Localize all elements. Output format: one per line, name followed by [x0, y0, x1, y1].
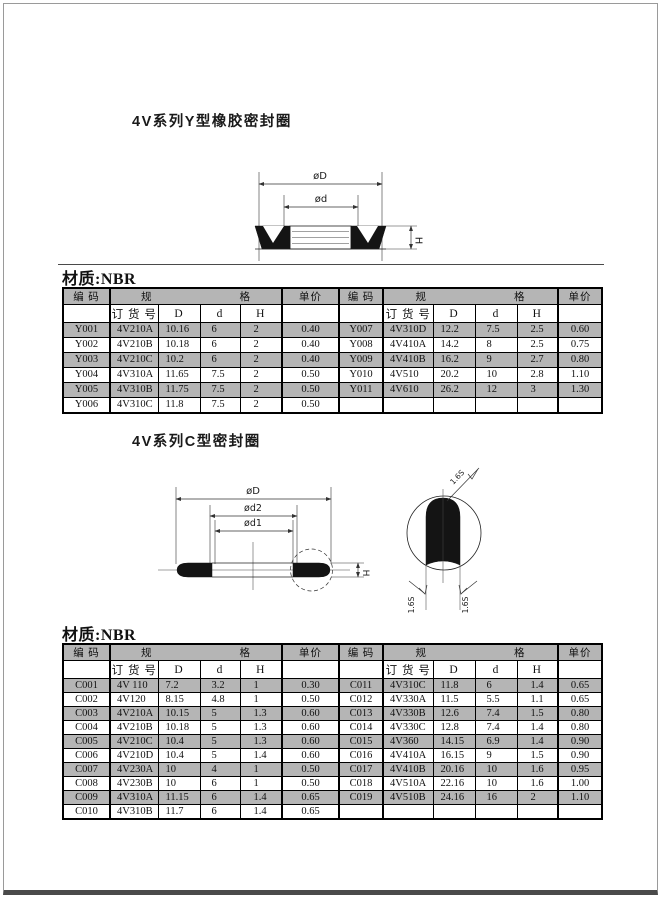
header-spec: 规 格 — [383, 288, 558, 305]
table-subheader-row: 订 货 号 D d H 订 货 号 D d H — [63, 661, 602, 679]
cell: 11.8 — [158, 398, 200, 414]
cell: 4V510B — [383, 791, 433, 805]
cell: 16.2 — [433, 353, 475, 368]
table-row: Y0024V210B10.18620.40Y0084V410A14.282.50… — [63, 338, 602, 353]
cell: 4V310B — [110, 383, 158, 398]
cell: 7.5 — [200, 383, 240, 398]
subheader-order-no: 订 货 号 — [110, 661, 158, 679]
cell: 20.2 — [433, 368, 475, 383]
cell: 4V360 — [383, 735, 433, 749]
dim-label-outer-diameter: øD — [246, 486, 260, 497]
cell: C012 — [339, 693, 383, 707]
cell — [558, 805, 602, 820]
cell: 1 — [240, 693, 282, 707]
cell: 1.4 — [240, 791, 282, 805]
cell: 6 — [200, 791, 240, 805]
subheader-H: H — [240, 305, 282, 323]
c-seal-right-ring — [293, 563, 330, 577]
table-row: C0094V310A11.1561.40.65C0194V510B24.1616… — [63, 791, 602, 805]
cell: C017 — [339, 763, 383, 777]
cell: 0.50 — [282, 693, 339, 707]
cell: 1.4 — [240, 749, 282, 763]
cell: 1.5 — [517, 707, 558, 721]
cell: 11.15 — [158, 791, 200, 805]
table-row: Y0014V210A10.16620.40Y0074V310D12.27.52.… — [63, 323, 602, 338]
cell: 0.90 — [558, 749, 602, 763]
header-price: 单价 — [282, 288, 339, 305]
cell: 0.50 — [282, 368, 339, 383]
cell — [383, 805, 433, 820]
cell: 7.2 — [158, 679, 200, 693]
cell: 0.65 — [558, 679, 602, 693]
cell: 4V310C — [383, 679, 433, 693]
cell: 1.6 — [517, 777, 558, 791]
cell: 11.8 — [433, 679, 475, 693]
cell: 9 — [475, 749, 517, 763]
cell: 4V210C — [110, 353, 158, 368]
y-seal-diagram: øD ød H — [243, 163, 433, 268]
cell: 6 — [475, 679, 517, 693]
cell: 2 — [240, 398, 282, 414]
cell: Y004 — [63, 368, 110, 383]
cell: 0.50 — [282, 398, 339, 414]
cell: 10 — [158, 763, 200, 777]
cell: 1.3 — [240, 721, 282, 735]
cell: Y005 — [63, 383, 110, 398]
header-spec: 规 格 — [383, 644, 558, 661]
header-price: 单价 — [282, 644, 339, 661]
cell: 11.5 — [433, 693, 475, 707]
cell — [383, 398, 433, 414]
cell: 4.8 — [200, 693, 240, 707]
section-divider-line — [58, 264, 604, 265]
dim-label-d1: ød1 — [244, 518, 262, 529]
c-seal-table: 编 码 规 格 单价 编 码 规 格 单价 订 货 号 D d H — [62, 643, 603, 820]
cell: 5.5 — [475, 693, 517, 707]
subheader-blank — [339, 305, 383, 323]
table-row: C0014V 1107.23.210.30C0114V310C11.861.40… — [63, 679, 602, 693]
cell: 6.9 — [475, 735, 517, 749]
subheader-d: d — [200, 661, 240, 679]
cell: 11.65 — [158, 368, 200, 383]
cell: 7.4 — [475, 721, 517, 735]
cell: 10.15 — [158, 707, 200, 721]
cell: 7.5 — [475, 323, 517, 338]
cell: 0.30 — [282, 679, 339, 693]
subheader-d: d — [475, 661, 517, 679]
cell: 0.60 — [282, 707, 339, 721]
cell — [339, 805, 383, 820]
cell: 3 — [517, 383, 558, 398]
cell: 5 — [200, 735, 240, 749]
cell: 1 — [240, 763, 282, 777]
cell: 1.4 — [517, 721, 558, 735]
cell: 4V210A — [110, 707, 158, 721]
cell — [517, 398, 558, 414]
subheader-blank — [558, 661, 602, 679]
cell: 0.80 — [558, 353, 602, 368]
header-code: 编 码 — [339, 288, 383, 305]
cell — [433, 805, 475, 820]
cell: 12 — [475, 383, 517, 398]
cell: 4V230B — [110, 777, 158, 791]
subheader-H: H — [517, 661, 558, 679]
material-label-c: 材质:NBR — [62, 621, 136, 645]
cell: 0.65 — [282, 805, 339, 820]
cell — [517, 805, 558, 820]
cell: 2 — [240, 353, 282, 368]
header-code: 编 码 — [63, 288, 110, 305]
cell: 1.10 — [558, 368, 602, 383]
cell: 4V510 — [383, 368, 433, 383]
dim-label-inner-diameter: ød — [315, 194, 327, 205]
cell: C003 — [63, 707, 110, 721]
dim-label-d2: ød2 — [244, 503, 262, 514]
cell: 22.16 — [433, 777, 475, 791]
cell: 10.4 — [158, 735, 200, 749]
subheader-order-no: 订 货 号 — [110, 305, 158, 323]
cell: C013 — [339, 707, 383, 721]
cell: 1.4 — [517, 679, 558, 693]
header-price: 单价 — [558, 644, 602, 661]
subheader-H: H — [517, 305, 558, 323]
cell: 1 — [240, 679, 282, 693]
cell: 3.2 — [200, 679, 240, 693]
cell: C002 — [63, 693, 110, 707]
table-row: C0064V210D10.451.40.60C0164V410A16.1591.… — [63, 749, 602, 763]
cell: 1.00 — [558, 777, 602, 791]
cell: 0.40 — [282, 323, 339, 338]
table-row: C0054V210C10.451.30.60C0154V36014.156.91… — [63, 735, 602, 749]
cell: 6 — [200, 805, 240, 820]
cell: 12.2 — [433, 323, 475, 338]
subheader-D: D — [433, 305, 475, 323]
cell: C010 — [63, 805, 110, 820]
cell — [558, 398, 602, 414]
table-header-row: 编 码 规 格 单价 编 码 规 格 单价 — [63, 644, 602, 661]
cell: C014 — [339, 721, 383, 735]
header-price: 单价 — [558, 288, 602, 305]
table-row: C0034V210A10.1551.30.60C0134V330B12.67.4… — [63, 707, 602, 721]
subheader-D: D — [158, 305, 200, 323]
cell: 14.2 — [433, 338, 475, 353]
cell: 4V410B — [383, 353, 433, 368]
table-header-row: 编 码 规 格 单价 编 码 规 格 单价 — [63, 288, 602, 305]
cell: 7.5 — [200, 398, 240, 414]
cell: 4V330C — [383, 721, 433, 735]
cell: 0.50 — [282, 383, 339, 398]
cell: 10.4 — [158, 749, 200, 763]
subheader-blank — [282, 661, 339, 679]
cell: Y010 — [339, 368, 383, 383]
table-row: Y0044V310A11.657.520.50Y0104V51020.2102.… — [63, 368, 602, 383]
surface-finish-label-right: 1.6S — [461, 596, 470, 613]
subheader-d: d — [200, 305, 240, 323]
dim-label-height: H — [413, 237, 424, 245]
cell: 4V330A — [383, 693, 433, 707]
cell: 4V410B — [383, 763, 433, 777]
dim-label-outer-diameter: øD — [313, 171, 327, 182]
cell: 1.4 — [517, 735, 558, 749]
cell: 0.90 — [558, 735, 602, 749]
cell: 2.8 — [517, 368, 558, 383]
cell: 0.75 — [558, 338, 602, 353]
cell: 0.40 — [282, 338, 339, 353]
subheader-order-no: 订 货 号 — [383, 305, 433, 323]
cell: C009 — [63, 791, 110, 805]
cell: 0.60 — [282, 749, 339, 763]
header-spec: 规 格 — [110, 644, 282, 661]
cell: 26.2 — [433, 383, 475, 398]
cell: C004 — [63, 721, 110, 735]
cell: 11.75 — [158, 383, 200, 398]
surface-finish-label-left: 1.6S — [407, 596, 416, 613]
subheader-blank — [339, 661, 383, 679]
cell: 6 — [200, 353, 240, 368]
cell: C008 — [63, 777, 110, 791]
cell: 4V 110 — [110, 679, 158, 693]
section-title-c: 4V系列C型密封圈 — [132, 430, 261, 451]
table-row: Y0064V310C11.87.520.50 — [63, 398, 602, 414]
cell: 10 — [475, 763, 517, 777]
subheader-H: H — [240, 661, 282, 679]
cell: C006 — [63, 749, 110, 763]
header-code: 编 码 — [63, 644, 110, 661]
cell: 4V120 — [110, 693, 158, 707]
cell: 2 — [240, 338, 282, 353]
cell: 2 — [240, 383, 282, 398]
table-row: C0074V230A10410.50C0174V410B20.16101.60.… — [63, 763, 602, 777]
subheader-blank — [558, 305, 602, 323]
cell: Y007 — [339, 323, 383, 338]
cell: Y003 — [63, 353, 110, 368]
cell: C011 — [339, 679, 383, 693]
cell: Y011 — [339, 383, 383, 398]
table-row: C0044V210B10.1851.30.60C0144V330C12.87.4… — [63, 721, 602, 735]
cell: 4V230A — [110, 763, 158, 777]
cell: 4V330B — [383, 707, 433, 721]
table-row: C0024V1208.154.810.50C0124V330A11.55.51.… — [63, 693, 602, 707]
cell: 1.1 — [517, 693, 558, 707]
cell: 4V310C — [110, 398, 158, 414]
cell: 4V210B — [110, 721, 158, 735]
cell: 4V210D — [110, 749, 158, 763]
cell — [339, 398, 383, 414]
cell: 4V210B — [110, 338, 158, 353]
subheader-blank — [63, 305, 110, 323]
cell: 10 — [475, 368, 517, 383]
cell: 0.40 — [282, 353, 339, 368]
cell: 10.18 — [158, 721, 200, 735]
table-row: C0104V310B11.761.40.65 — [63, 805, 602, 820]
header-spec: 规 格 — [110, 288, 282, 305]
cell: 10 — [158, 777, 200, 791]
cell: 8.15 — [158, 693, 200, 707]
cell: 4V410A — [383, 338, 433, 353]
cell: 2 — [240, 323, 282, 338]
cell: 7.5 — [200, 368, 240, 383]
cell: 6 — [200, 777, 240, 791]
cell: 1.3 — [240, 707, 282, 721]
cell: 24.16 — [433, 791, 475, 805]
y-seal-table: 编 码 规 格 单价 编 码 规 格 单价 订 货 号 D d H — [62, 287, 603, 414]
cell: 4V510A — [383, 777, 433, 791]
cell: 0.80 — [558, 707, 602, 721]
cell: 0.60 — [282, 721, 339, 735]
cell: 12.6 — [433, 707, 475, 721]
cell: 5 — [200, 707, 240, 721]
cell: 16.15 — [433, 749, 475, 763]
cell: C018 — [339, 777, 383, 791]
cell: C005 — [63, 735, 110, 749]
header-code: 编 码 — [339, 644, 383, 661]
cell: 11.7 — [158, 805, 200, 820]
cell: 0.60 — [282, 735, 339, 749]
cell: 2.5 — [517, 338, 558, 353]
cell: 0.60 — [558, 323, 602, 338]
section-title-y: 4V系列Y型橡胶密封圈 — [132, 110, 292, 131]
material-label-y: 材质:NBR — [62, 265, 136, 289]
cell: 5 — [200, 749, 240, 763]
table-row: Y0054V310B11.757.520.50Y0114V61026.21231… — [63, 383, 602, 398]
cell: 1.3 — [240, 735, 282, 749]
cell: 9 — [475, 353, 517, 368]
cell: 2 — [240, 368, 282, 383]
cell: 10 — [475, 777, 517, 791]
cell: 20.16 — [433, 763, 475, 777]
cell: 4V310A — [110, 368, 158, 383]
cell — [475, 398, 517, 414]
cell: C007 — [63, 763, 110, 777]
cell: C019 — [339, 791, 383, 805]
cell: 2.7 — [517, 353, 558, 368]
subheader-blank — [63, 661, 110, 679]
table-subheader-row: 订 货 号 D d H 订 货 号 D d H — [63, 305, 602, 323]
c-seal-diagram: øD ød2 ød1 H 1.6S 1. — [148, 452, 538, 617]
table-row: Y0034V210C10.2620.40Y0094V410B16.292.70.… — [63, 353, 602, 368]
cell: Y002 — [63, 338, 110, 353]
subheader-d: d — [475, 305, 517, 323]
cell: 1.6 — [517, 763, 558, 777]
subheader-order-no: 订 货 号 — [383, 661, 433, 679]
cell: 4V310D — [383, 323, 433, 338]
cell: Y001 — [63, 323, 110, 338]
cell: 0.50 — [282, 763, 339, 777]
cell: 12.8 — [433, 721, 475, 735]
cell: C015 — [339, 735, 383, 749]
cell: C016 — [339, 749, 383, 763]
cell: 4V410A — [383, 749, 433, 763]
cell: 4V310A — [110, 791, 158, 805]
cell: 7.4 — [475, 707, 517, 721]
cell: 16 — [475, 791, 517, 805]
cell: Y008 — [339, 338, 383, 353]
cell: 1.5 — [517, 749, 558, 763]
cell: 0.65 — [558, 693, 602, 707]
cell: Y006 — [63, 398, 110, 414]
cell: 5 — [200, 721, 240, 735]
dim-label-height: H — [360, 570, 370, 577]
cell: 0.95 — [558, 763, 602, 777]
cell: 4V610 — [383, 383, 433, 398]
subheader-D: D — [433, 661, 475, 679]
cell: C001 — [63, 679, 110, 693]
cell: 10.16 — [158, 323, 200, 338]
cell: Y009 — [339, 353, 383, 368]
cell: 1.30 — [558, 383, 602, 398]
cell: 8 — [475, 338, 517, 353]
cell: 4 — [200, 763, 240, 777]
cell: 6 — [200, 338, 240, 353]
cell: 4V210A — [110, 323, 158, 338]
cell: 1 — [240, 777, 282, 791]
cell: 4V210C — [110, 735, 158, 749]
cell: 1.10 — [558, 791, 602, 805]
cell: 10.18 — [158, 338, 200, 353]
cell: 14.15 — [433, 735, 475, 749]
cell: 1.4 — [240, 805, 282, 820]
cell: 0.80 — [558, 721, 602, 735]
table-row: C0084V230B10610.50C0184V510A22.16101.61.… — [63, 777, 602, 791]
cell: 6 — [200, 323, 240, 338]
c-seal-left-ring — [177, 563, 212, 577]
cell: 0.50 — [282, 777, 339, 791]
cell: 0.65 — [282, 791, 339, 805]
cell: 10.2 — [158, 353, 200, 368]
cell: 2 — [517, 791, 558, 805]
cell: 4V310B — [110, 805, 158, 820]
cell: 2.5 — [517, 323, 558, 338]
cell — [475, 805, 517, 820]
subheader-blank — [282, 305, 339, 323]
subheader-D: D — [158, 661, 200, 679]
cell — [433, 398, 475, 414]
